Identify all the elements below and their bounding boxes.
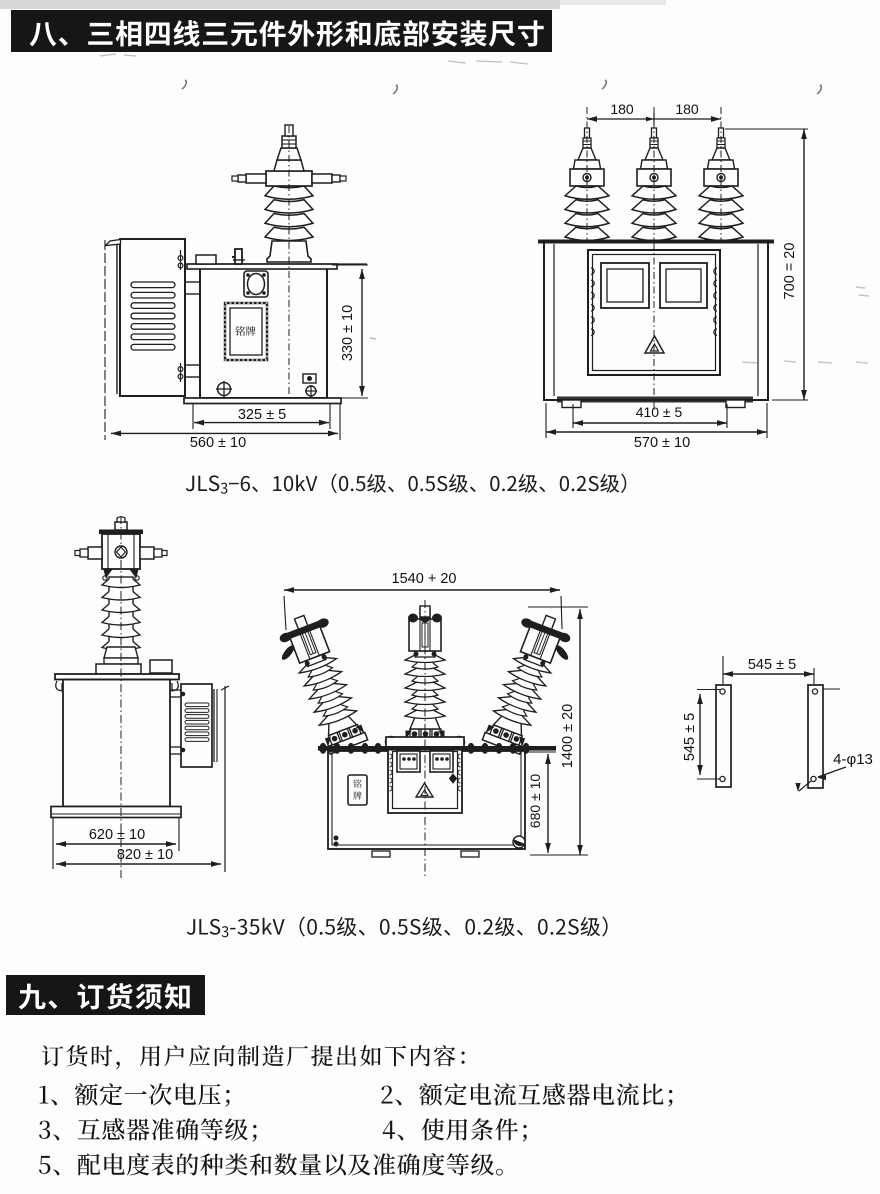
svg-text:545 ± 5: 545 ± 5 (748, 657, 796, 673)
svg-text:180: 180 (675, 101, 699, 117)
svg-text:1540 + 20: 1540 + 20 (392, 571, 457, 587)
svg-text:820 ± 10: 820 ± 10 (117, 847, 173, 863)
svg-text:560 ± 10: 560 ± 10 (190, 435, 246, 451)
svg-text:570 ± 10: 570 ± 10 (634, 435, 690, 451)
svg-text:680 ± 10: 680 ± 10 (527, 774, 543, 829)
svg-text:700 = 20: 700 = 20 (782, 243, 798, 300)
svg-text:410 ± 5: 410 ± 5 (636, 404, 683, 420)
svg-text:1400 ± 20: 1400 ± 20 (560, 704, 576, 768)
svg-text:180: 180 (610, 101, 634, 117)
svg-text:325 ± 5: 325 ± 5 (238, 407, 286, 423)
svg-text:620 ± 10: 620 ± 10 (89, 827, 145, 843)
svg-text:545 ± 5: 545 ± 5 (682, 713, 698, 761)
svg-text:4-φ13: 4-φ13 (833, 751, 873, 768)
svg-text:330 ± 10: 330 ± 10 (340, 305, 356, 361)
